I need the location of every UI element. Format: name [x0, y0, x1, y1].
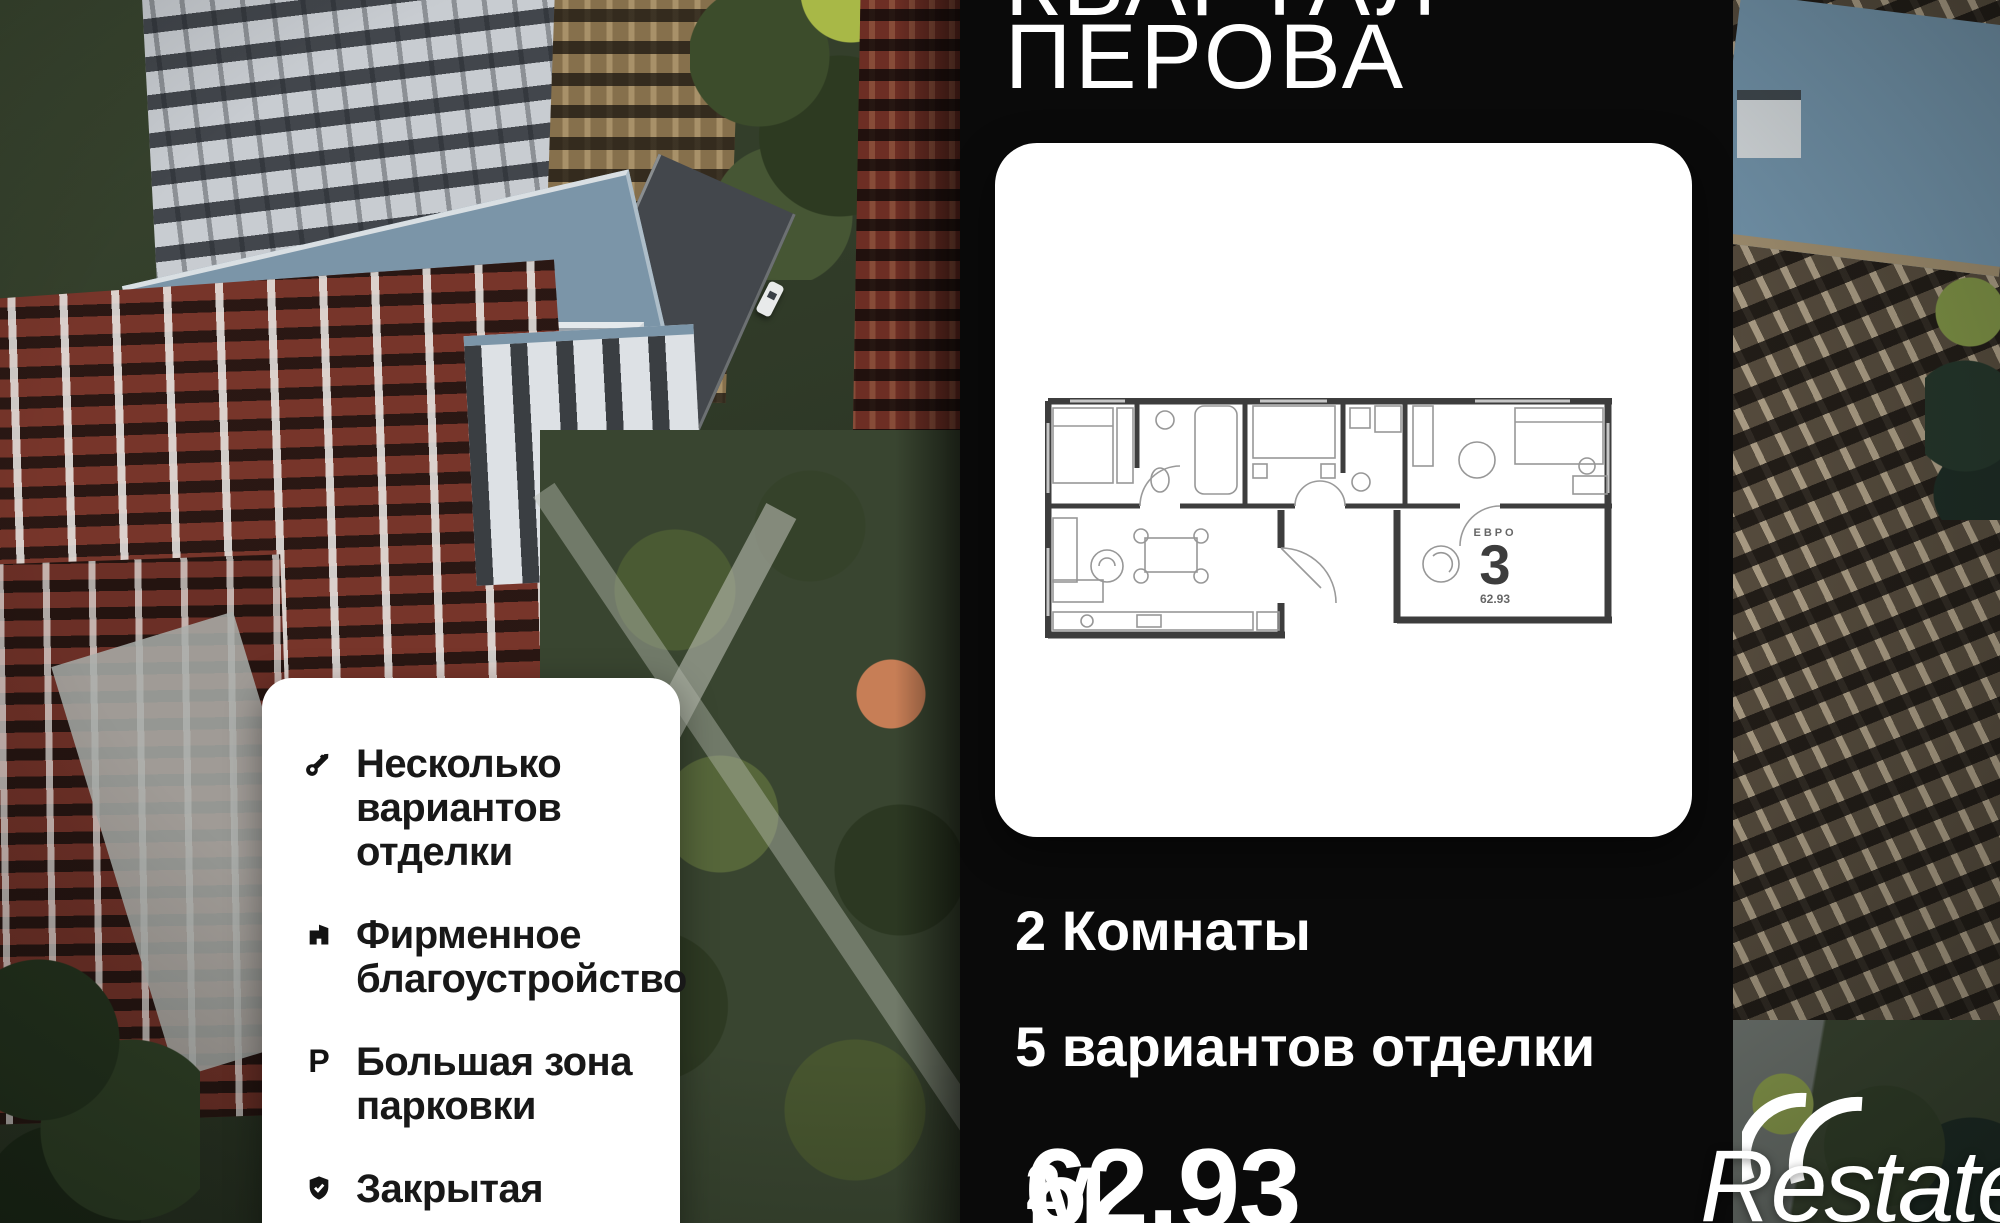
feature-item: P Большая зона парковки: [304, 1040, 680, 1128]
parking-icon: P: [304, 1046, 334, 1076]
building-icon: [304, 919, 334, 949]
parking-letter: P: [308, 1046, 329, 1076]
plan-badge-area: 62.93: [1480, 592, 1510, 606]
area-value: 62.93 м2: [1025, 1124, 1060, 1223]
feature-item: Несколько вариантов отделки: [304, 742, 680, 874]
feature-item: Фирменное благоустройство: [304, 913, 680, 1001]
finish-options: 5 вариантов отделки: [1015, 1014, 1595, 1079]
key-icon: [304, 748, 334, 778]
features-card: Несколько вариантов отделки Фирменное бл…: [262, 678, 680, 1223]
feature-label: Фирменное благоустройство: [356, 913, 687, 1001]
feature-item: Закрытая территория: [304, 1167, 680, 1223]
area-unit: м: [1025, 1124, 1107, 1223]
feature-label: Большая зона парковки: [356, 1040, 632, 1128]
panel-shadow: [895, 0, 965, 1223]
restate-logo-text: Restate: [1700, 1128, 2000, 1223]
feature-label: Несколько вариантов отделки: [356, 742, 680, 874]
shield-check-icon: [304, 1173, 334, 1203]
promo-image: КВАРТАЛ ПЕРОВА: [0, 0, 2000, 1223]
rooms-count: 2 Комнаты: [1015, 898, 1311, 963]
feature-label: Закрытая территория: [356, 1167, 582, 1223]
complex-name-line2: ПЕРОВА: [1005, 11, 1407, 103]
floorplan-drawing: ЕВРО 3 62.93: [1045, 398, 1615, 643]
plan-badge-rooms: 3: [1479, 533, 1510, 596]
